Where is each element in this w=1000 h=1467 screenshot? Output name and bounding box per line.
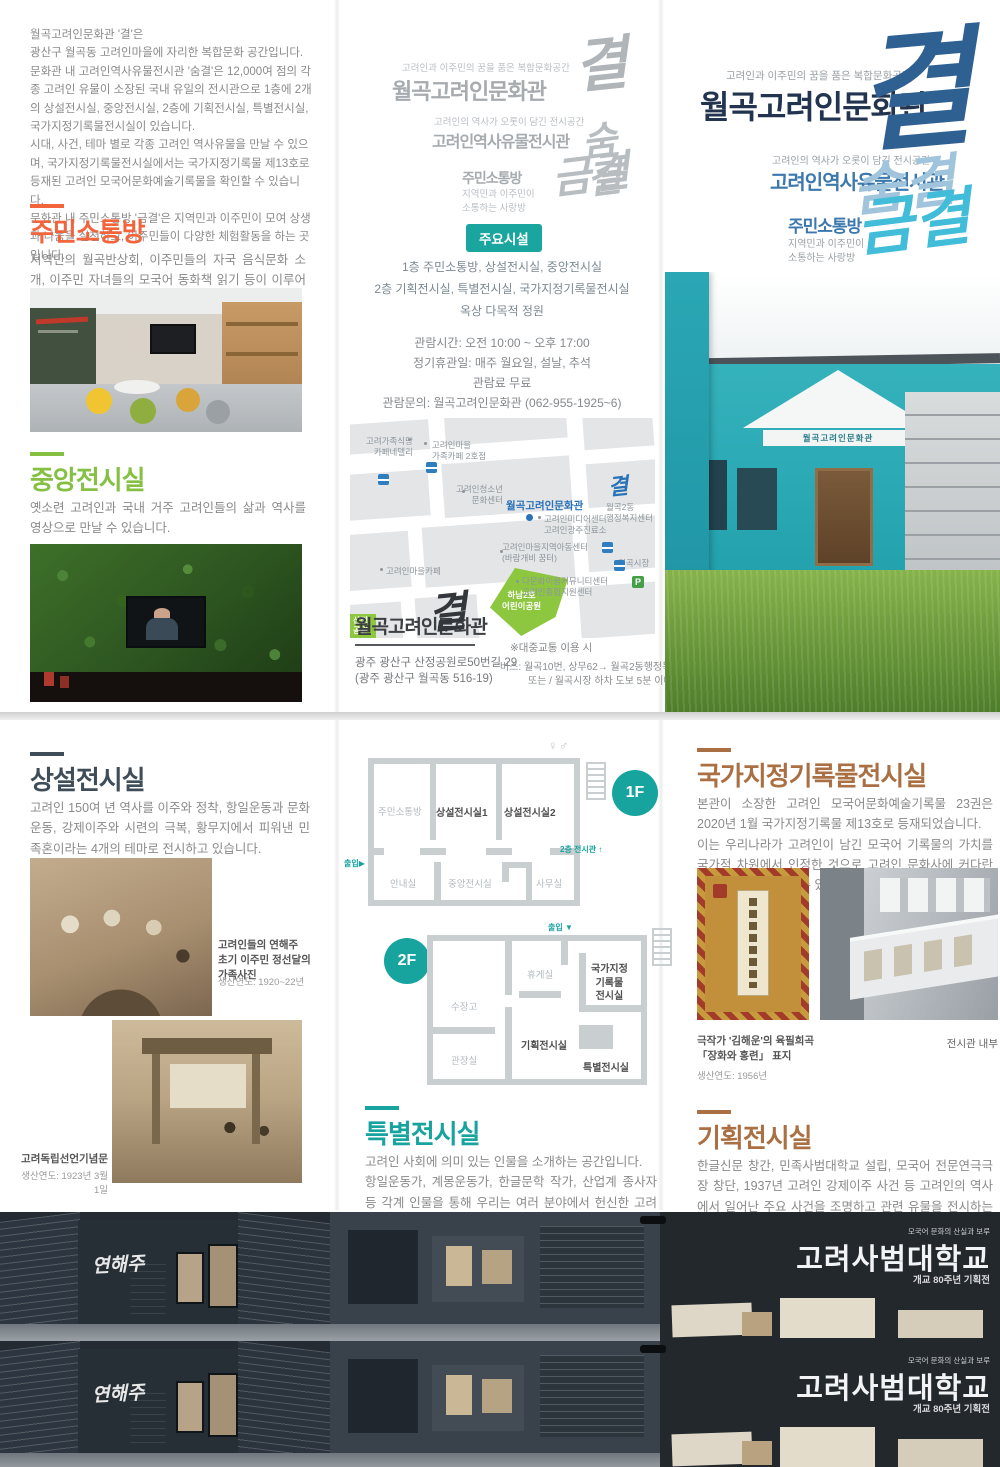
photo-floor [30,384,302,432]
map-label-restaurant: 고려가족식당 카페네델리 [366,436,413,459]
caption-interior: 전시관 내부 [900,1036,998,1051]
photo-manuscript [697,868,809,1020]
entry-text: 출입 [344,859,359,868]
building-door [815,468,873,566]
plan-wall [519,991,561,998]
strip-mid-photo [482,1250,512,1284]
map-poi-dot [462,490,465,493]
room-label: 국가지정 기록물 전시실 [591,963,628,1004]
facilities-roof: 옥상 다목적 정원 [352,300,652,323]
plan-wall [579,953,586,1011]
strip-sepia-prop [742,1441,772,1465]
strip-sign-sub: 개교 80주년 기획전 [790,1401,990,1415]
plan-wall [526,862,532,900]
central-divider [30,452,64,456]
photo-red-cup [44,672,54,686]
plan-wall [486,848,512,855]
to-upper-label: 2층 전시관 ↑ [560,844,602,855]
strip-exhibit-panel [780,1298,875,1338]
strip-mid-panel-dark [348,1359,418,1433]
permanent-divider [30,752,64,756]
map-label-community-center: 다문화이음커뮤니티센터 고려인종합지원센터 [522,576,608,599]
photo-chalk-writing2 [38,330,78,333]
map-poi-dot [538,516,541,519]
transit-bus2: 또는 / 월곡시장 하차 도보 5분 이내 [528,672,673,687]
room-label: 수장고 [451,999,477,1013]
map-poi-dot [380,568,383,571]
gray-center-name: 월곡고려인문화관 [392,74,546,106]
gray-tagline-exhibit: 고려인의 역사가 오롯이 담긴 전시공간 [434,114,584,128]
strip-wall-text [130,1264,166,1320]
exhibition-photo-strip-2: 연해주 모국어 문화의 산실과 보루 고려사범대학교 개교 80주년 기획전 [0,1341,1000,1467]
special-section-divider [365,1106,399,1110]
location-map: 하남2호 어린이공원 산정 공원 고려가족식당 카페네델리 고려인마을 가족카페… [350,418,655,638]
plan-wall [505,941,512,995]
visit-fee: 관람료 무료 [352,372,652,394]
planning-divider [697,1110,731,1114]
strip-sign-sub: 개교 80주년 기획전 [790,1272,990,1286]
room-label: 상설전시실1 [436,804,488,819]
arrow-down-icon: ▼ [565,923,573,932]
central-title: 중앙전시실 [30,460,145,497]
floorplan-2f: 수장고 휴게실 국가지정 기록물 전시실 관장실 기획전시실 특별전시실 [427,935,647,1085]
map-poi-dot [408,438,411,441]
photo-gate-sepia [112,1020,302,1183]
visit-closed: 정기휴관일: 매주 월요일, 설날, 추석 [352,352,652,374]
photo-table [114,380,160,394]
plan-wall [496,764,502,840]
gate-post2 [252,1054,260,1144]
map-main-script: 결 [607,475,629,499]
strip-exhibit-panel [780,1427,875,1467]
manuscript-stamp [713,884,727,898]
plan-wall [433,1027,495,1034]
facilities-floor1: 1층 주민소통방, 상설전시실, 중앙전시실 [352,256,652,279]
floorplan-1f: 주민소통방 상설전시실1 상설전시실2 안내실 중앙전시실 사무실 [368,758,580,906]
photo-chair-green [130,398,156,424]
transit-note: ※대중교통 이용 시 [510,640,592,655]
strip-exhibit-panel [898,1439,983,1467]
bus-stop-icon [602,542,613,553]
strip-mid-panel-dark2 [540,1226,644,1308]
photo-cabinet-shelf2 [226,352,298,356]
stairs-icon [586,762,606,800]
facilities-badge: 주요시설 [466,224,542,252]
strip-mid-photo [446,1375,472,1415]
room-label: 특별전시실 [583,1059,629,1074]
map-poi-dot [500,550,503,553]
strip-framed-photo [176,1381,204,1433]
room-label: 관장실 [451,1053,477,1067]
to-upper-text: 2층 전시관 [560,845,596,854]
photo-screen-person [154,608,170,618]
map-block [581,418,654,450]
manuscript-title-text-lines [749,898,757,988]
special-title: 특별전시실 [365,1114,480,1151]
building-window2 [737,468,777,530]
parking-icon: P [632,576,644,588]
room-label: 기획전시실 [521,1037,567,1052]
strip-sepia-prop [742,1312,772,1336]
strip-right-panels [238,1341,330,1467]
map-poi-dot [516,580,519,583]
building-grass [665,570,1000,712]
photo-chair-gray [206,400,230,424]
gray-script-gyeol: 결 [571,33,630,96]
caption-manuscript-year: 생산연도: 1956년 [697,1068,767,1082]
strip-left-panels [0,1341,80,1467]
arrow-up-icon: ↑ [598,845,602,854]
address-lot: (광주 광산구 월곡동 516-19) [355,670,493,686]
strip-ceiling-light [640,1216,666,1224]
strip-scene: 연해주 모국어 문화의 산실과 보루 고려사범대학교 개교 80주년 기획전 [0,1212,1000,1341]
map-block [350,469,431,521]
cover-script-gyeol: 결 [850,23,978,161]
strip-wall-text [130,1393,166,1449]
room-label: 중앙전시실 [448,876,492,890]
address-road: 광주 광산구 산정공원로50번길 29 [355,654,517,670]
caption-manuscript: 극작가 '김해운'의 육필희곡 「장화와 홍련」 표지 [697,1034,867,1064]
brochure-page: 월곡고려인문화관 '결'은 광산구 월곡동 고려인마을에 자리한 복합문화 공간… [0,0,1000,1467]
fold-line [334,0,340,712]
map-label-admin-center: 월곡2동 행정복지센터 [606,502,653,525]
communication-title: 주민소통방 [30,212,145,249]
entry-label-1f: 출입▶ [344,858,365,869]
gate-structure [142,1038,272,1054]
exhibition-photo-strip-1: 연해주 모국어 문화의 산실과 보루 고려사범대학교 개교 80주년 기획전 [0,1212,1000,1341]
photo-building: 월곡고려인문화관 [665,272,1000,712]
entry-label-2f: 출입 ▼ [548,922,573,933]
photo-central-gallery [30,544,302,702]
records-title: 국가지정기록물전시실 [697,756,926,793]
map-main-dot [526,514,533,521]
map-label-media-center: 고려인미디어센터 고려인광주진료소 [544,514,607,537]
plan-wall [579,1025,613,1049]
strip-left-panels [0,1212,80,1341]
records-divider [697,748,731,752]
plan-wall [374,848,384,855]
strip-exhibit-panel [671,1432,752,1467]
photo-chair-yellow [86,388,112,414]
strip-floor [0,1453,660,1467]
gate-building [170,1064,246,1108]
room-label: 사무실 [536,876,562,890]
plan-wall [434,862,441,900]
photo-display-cases [820,868,998,1020]
strip-exhibit-panel [671,1303,752,1338]
plan-wall [420,848,446,855]
cover-lounge-sub: 지역민과 이주민이 소통하는 사랑방 [788,238,864,266]
plan-wall [505,1007,512,1079]
address-underline [355,644,475,646]
photo-red-cup2 [60,676,69,688]
photo-chair-mustard [176,388,200,412]
plan-wall [561,941,568,965]
map-label-cafe2: 고려인마을 가족카페 2호점 [432,440,486,463]
photo-wall-tv [150,324,196,354]
fold-line [334,720,340,1210]
strip-floor [0,1324,660,1341]
strip-framed-photo [176,1252,204,1304]
floor-badge-2f: 2F [384,938,430,984]
building-sign: 월곡고려인문화관 [763,430,913,446]
cover-lounge-title: 주민소통방 [788,212,861,237]
photo-screen-shoulders [146,618,178,640]
cover-script-geumgyeol: 금결 [853,185,974,260]
map-label-youth-center: 고려인청소년 문화센터 [456,484,503,507]
room-label: 상설전시실2 [504,804,556,819]
caption-gate: 고려독립선언기념문 [18,1152,108,1167]
map-label-children-center: 고려인마을지역아동센터 (바람개비 꿈터) [502,542,588,565]
room-label: 주민소통방 [378,804,422,818]
gate-post [152,1054,160,1144]
room-label: 안내실 [390,876,416,890]
permanent-title: 상설전시실 [30,760,145,797]
map-poi-dot [424,442,427,445]
gray-logo-block: 고려인과 이주민의 꿈을 품은 복합문화공간 월곡고려인문화관 결 고려인의 역… [352,42,652,212]
gray-lounge-name: 주민소통방 [462,168,521,188]
communication-divider [30,204,64,208]
photo-floor-dark [30,672,302,702]
gray-lounge-sub: 지역민과 이주민이 소통하는 사랑방 [462,186,535,214]
bus-stop-icon [614,560,625,571]
strip-ceiling-light [640,1345,666,1353]
central-body: 옛소련 고려인과 국내 거주 고려인들의 삶과 역사를 영상으로 만날 수 있습… [30,498,306,539]
room-label: 휴게실 [527,967,553,981]
strip-framed-photo [208,1244,238,1308]
gray-exhibit-name: 고려인역사유물전시관 [432,128,569,152]
building-shelf-lines [905,392,1000,572]
entry-text: 출입 [548,923,563,932]
strip-framed-photo [208,1373,238,1437]
restroom-icon: ♀♂ [548,738,570,753]
bus-stop-icon [426,462,437,473]
visit-contact: 관람문의: 월곡고려인문화관 (062-955-1925~6) [352,392,652,414]
floor-badge-1f: 1F [612,770,658,816]
strip-exhibit-panel [898,1310,983,1338]
map-label-village-cafe: 고려인마을카페 [386,566,441,577]
caption-gate-year: 생산연도: 1923년 3월 1일 [18,1168,108,1196]
photo-community-room [30,288,302,432]
stairs-icon [652,928,672,966]
sheet-separator [0,712,1000,720]
strip-mid-panel-dark2 [540,1355,644,1437]
strip-mid-panel-dark [348,1230,418,1304]
strip-mid-photo [446,1246,472,1286]
plan-wall [430,764,436,840]
map-block [350,531,412,592]
planning-title: 기획전시실 [697,1118,812,1155]
permanent-body: 고려인 150여 년 역사를 이주와 정착, 항일운동과 문화운동, 강제이주와… [30,798,310,859]
strip-mid-photo [482,1379,512,1413]
gray-tagline-center: 고려인과 이주민의 꿈을 품은 복합문화공간 [402,60,570,74]
gray-script-geumgyeol: 금결 [550,149,632,200]
photo-family-sepia [30,858,212,1016]
fold-line [658,0,664,712]
visit-hours: 관람시간: 오전 10:00 ~ 오후 17:00 [352,332,652,354]
map-main-label: 월곡고려인문화관 [506,498,583,513]
plan-wall [579,1005,641,1012]
bus-stop-icon [378,474,389,485]
address-logo-script: 결 [426,590,469,636]
wall-documents [880,878,990,912]
photo-cabinet-shelf [226,322,298,326]
strip-right-panels [238,1212,330,1341]
strip-scene: 연해주 모국어 문화의 산실과 보루 고려사범대학교 개교 80주년 기획전 [0,1341,1000,1467]
facilities-floor2: 2층 기획전시실, 특별전시실, 국가지정기록물전시실 [352,278,652,301]
arrow-right-icon: ▶ [359,859,365,868]
caption-family-year: 생산연도: 1920~22년 [218,974,322,988]
